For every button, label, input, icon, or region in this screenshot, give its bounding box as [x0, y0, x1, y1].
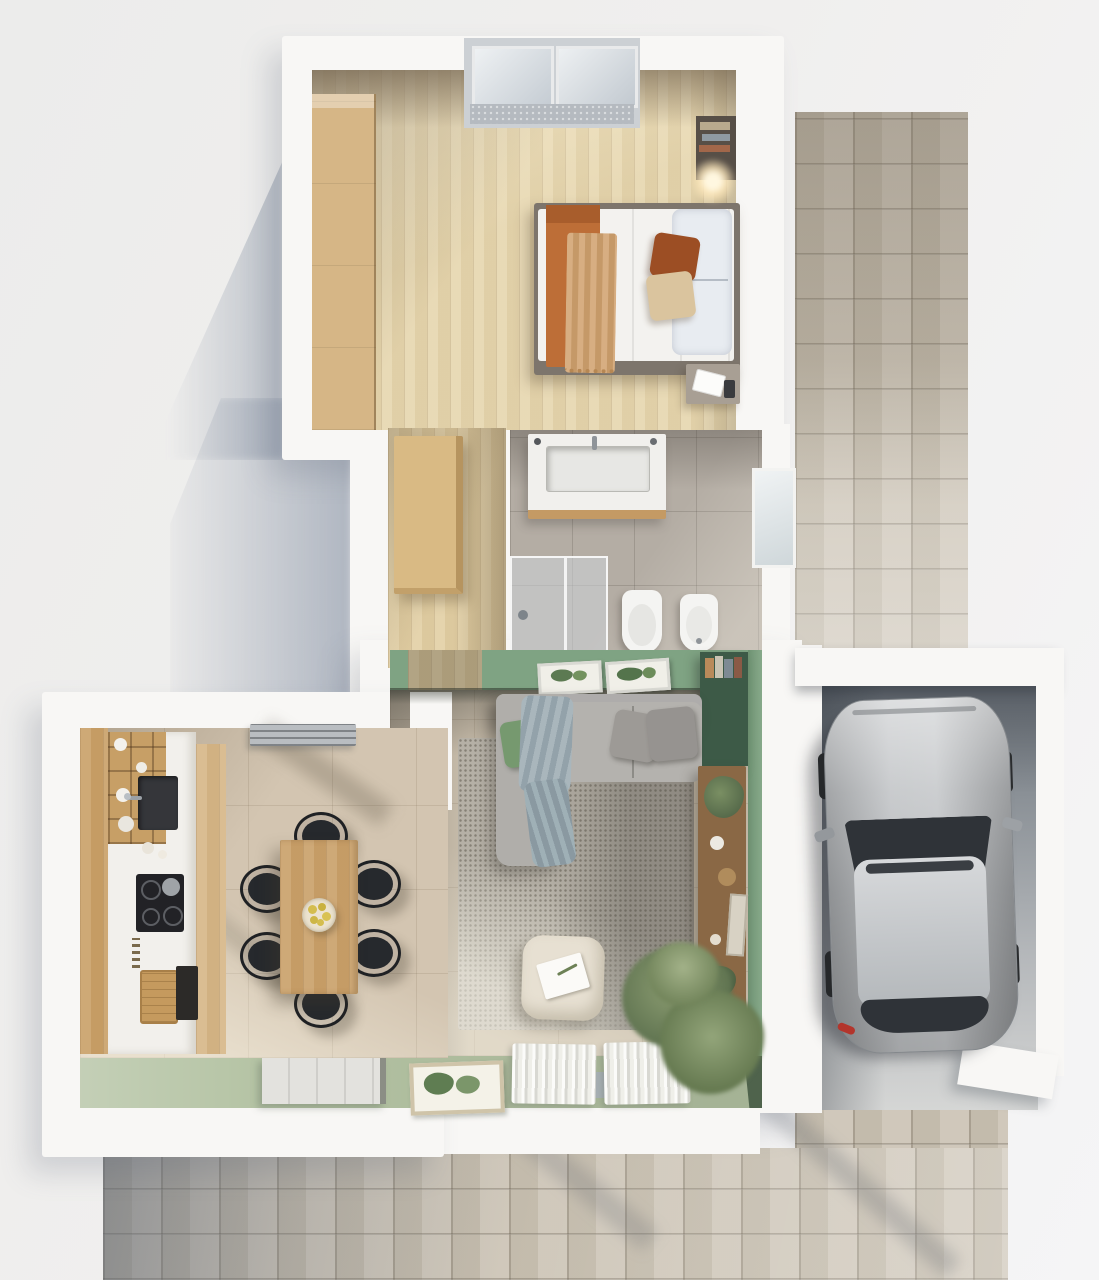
toilet: [622, 590, 662, 654]
soap-bottle: [534, 438, 541, 445]
kitchen-base-front: [196, 744, 226, 1054]
driveway-right-shading: [795, 112, 968, 660]
countertop-bowl: [142, 842, 154, 854]
bedroom-window: [464, 38, 640, 128]
book-spine: [715, 656, 723, 678]
book-on-pouf: [536, 952, 590, 999]
burner: [142, 908, 160, 926]
burner: [141, 880, 161, 900]
plant-on-sideboard: [704, 776, 744, 818]
plate: [136, 762, 147, 773]
burner: [163, 906, 183, 926]
faucet: [592, 436, 597, 450]
print-leaf-art: [642, 667, 656, 679]
car-roof: [853, 856, 990, 1009]
book-spine: [734, 657, 742, 678]
candle: [710, 934, 721, 945]
white-vase: [710, 836, 724, 850]
book-spine: [724, 659, 733, 678]
print-leaf-art: [456, 1075, 481, 1094]
window-sill: [470, 104, 634, 124]
book-spine: [699, 145, 730, 152]
window-pane: [472, 46, 554, 108]
sofa-throw-blanket: [518, 695, 573, 793]
lemon: [317, 919, 324, 926]
bidet: [680, 594, 718, 652]
hall-opening-shade: [408, 650, 482, 690]
leaning-frame: [726, 893, 748, 956]
cooktop: [136, 874, 184, 932]
pouf: [521, 935, 606, 1022]
bed: [534, 203, 740, 375]
wardrobe: [312, 94, 376, 430]
floor-art-print: [409, 1060, 505, 1115]
print-leaf-art: [423, 1072, 454, 1095]
bed-pillow-beige: [645, 270, 696, 321]
hallway-cabinet: [394, 436, 463, 594]
plate: [118, 816, 134, 832]
sink-faucet-base: [124, 793, 131, 800]
book-spine: [700, 122, 730, 130]
botanical-print: [605, 658, 671, 694]
lemon: [318, 903, 326, 911]
wardrobe-top-face: [312, 94, 374, 108]
sheer-curtain: [511, 1043, 596, 1104]
blanket-fold: [546, 205, 600, 223]
print-leaf-art: [573, 670, 588, 681]
living-wall-top-left: [390, 650, 408, 690]
soap-bottle: [650, 438, 657, 445]
vanity-basin: [546, 446, 650, 492]
carport-wall-top: [795, 648, 1057, 686]
bookcase: [700, 652, 748, 766]
shower-head: [518, 610, 528, 620]
window-pane: [556, 46, 638, 108]
burner-pan: [162, 878, 180, 896]
plate: [114, 738, 127, 751]
shower-glass-edge: [564, 558, 567, 662]
print-leaf-art: [616, 667, 643, 682]
sofa-cushion-grey: [645, 706, 698, 763]
bedside-lamp-glow: [690, 158, 736, 204]
bathroom-window: [752, 468, 796, 568]
open-book: [692, 369, 726, 398]
wood-bowl: [718, 868, 736, 886]
entrance-door: [262, 1058, 386, 1104]
oven: [176, 966, 198, 1020]
lemon: [308, 905, 317, 914]
carport-wall-right: [1036, 648, 1064, 1076]
floor-plan-scene: [0, 0, 1099, 1280]
countertop-bowl: [158, 850, 167, 859]
shower: [510, 556, 608, 664]
nightstand: [686, 364, 740, 404]
print-leaf-art: [551, 669, 574, 682]
extractor-hood: [250, 724, 356, 746]
botanical-print: [537, 660, 603, 695]
book-spine: [702, 134, 730, 141]
utensil-rail: [132, 938, 140, 968]
car: [822, 695, 1018, 1053]
book-spine: [705, 658, 714, 678]
phone: [724, 380, 735, 398]
toilet-seat: [628, 604, 656, 646]
chair-seat: [355, 937, 393, 969]
living-wall-right: [748, 650, 762, 1056]
kitchen-tall-cabinets: [80, 728, 108, 1054]
lemon-bowl: [302, 898, 336, 932]
vanity: [528, 434, 666, 519]
bed-throw-tan: [565, 233, 617, 374]
cutting-board: [140, 970, 178, 1024]
kitchen-sink: [138, 776, 178, 830]
chair-seat: [355, 868, 393, 900]
bidet-faucet: [696, 638, 702, 644]
